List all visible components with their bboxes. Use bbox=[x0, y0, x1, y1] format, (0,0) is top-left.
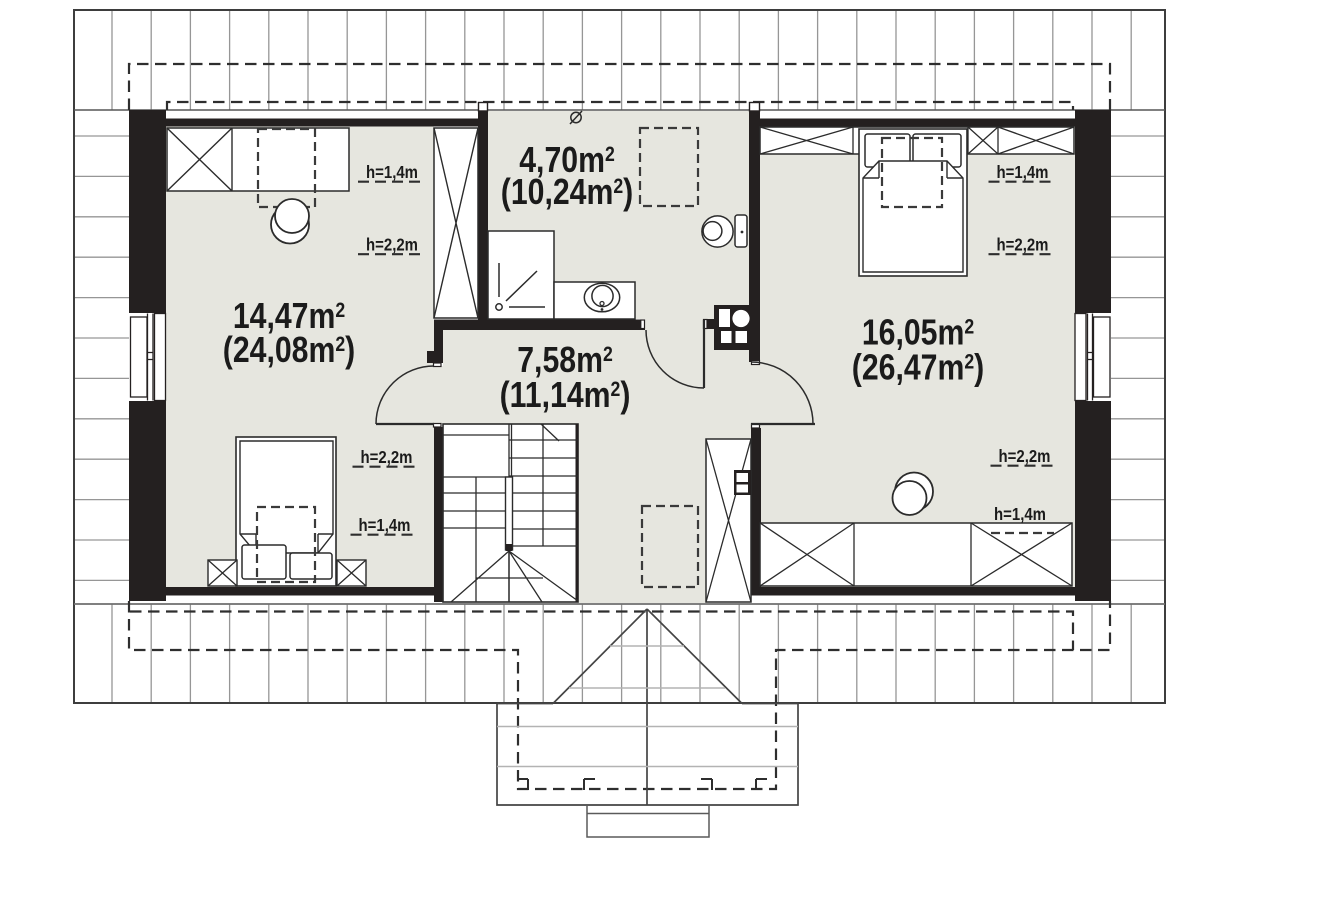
svg-text:h=1,4m: h=1,4m bbox=[997, 163, 1049, 182]
svg-text:h=1,4m: h=1,4m bbox=[359, 516, 411, 535]
svg-text:h=2,2m: h=2,2m bbox=[997, 235, 1049, 254]
svg-text:h=2,2m: h=2,2m bbox=[361, 448, 413, 467]
svg-text:h=2,2m: h=2,2m bbox=[999, 447, 1051, 466]
svg-text:h=2,2m: h=2,2m bbox=[366, 235, 418, 254]
svg-text:h=1,4m: h=1,4m bbox=[994, 505, 1046, 524]
svg-text:h=1,4m: h=1,4m bbox=[366, 163, 418, 182]
